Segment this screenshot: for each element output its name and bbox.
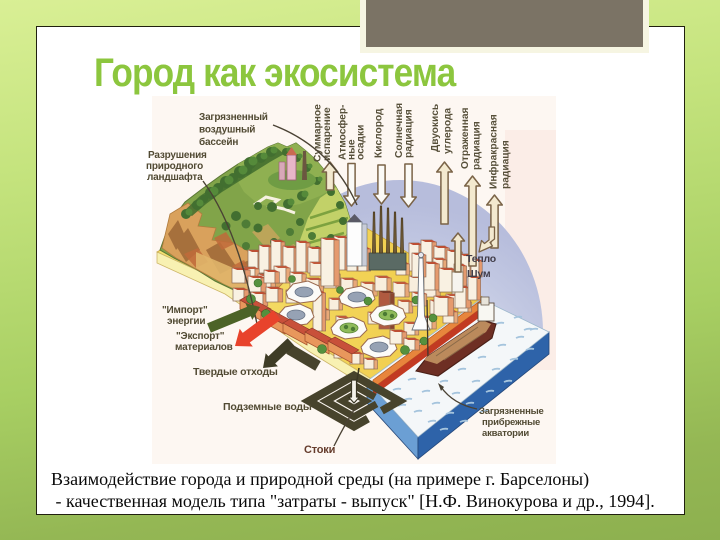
svg-text:воздушный: воздушный (199, 125, 255, 136)
svg-text:Разрушения: Разрушения (148, 150, 207, 161)
svg-text:радиация: радиация (404, 109, 415, 158)
svg-text:углерода: углерода (443, 108, 454, 154)
svg-text:Отраженная: Отраженная (460, 107, 471, 169)
svg-text:энергии: энергии (167, 316, 205, 327)
svg-text:ландшафта: ландшафта (147, 171, 203, 183)
svg-text:акватории: акватории (482, 428, 529, 439)
svg-text:Загрязненный: Загрязненный (199, 112, 268, 123)
svg-text:Тепло: Тепло (466, 253, 496, 265)
svg-text:Подземные воды: Подземные воды (223, 401, 312, 413)
svg-text:Загрязненные: Загрязненные (479, 406, 544, 417)
svg-text:Инфракрасная: Инфракрасная (488, 114, 500, 189)
svg-text:испарение: испарение (322, 107, 333, 161)
svg-text:радиация: радиация (472, 121, 483, 170)
svg-text:природного: природного (146, 161, 203, 172)
svg-text:Двуокись: Двуокись (430, 104, 441, 152)
svg-text:осадки: осадки (356, 125, 367, 160)
svg-text:материалов: материалов (175, 342, 233, 353)
svg-text:радиация: радиация (501, 140, 512, 189)
svg-text:Твердые отходы: Твердые отходы (193, 366, 278, 378)
svg-text:бассейн: бассейн (199, 136, 238, 148)
svg-text:"Импорт": "Импорт" (162, 305, 208, 316)
svg-text:Кислород: Кислород (374, 108, 385, 158)
svg-text:Шум: Шум (467, 268, 491, 280)
svg-text:"Экспорт": "Экспорт" (176, 331, 225, 342)
svg-text:Стоки: Стоки (304, 444, 335, 456)
svg-text:прибрежные: прибрежные (482, 417, 540, 428)
